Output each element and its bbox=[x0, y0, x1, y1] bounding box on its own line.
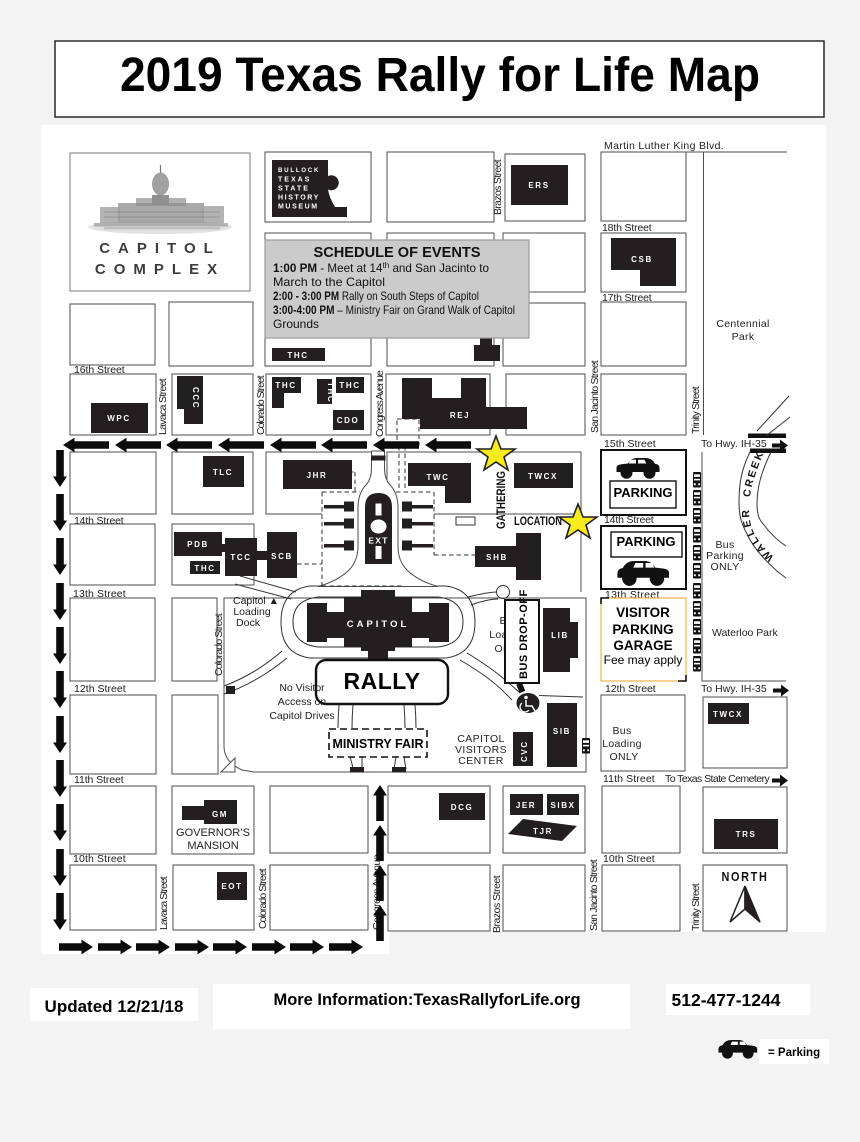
svg-text:No Visitor: No Visitor bbox=[279, 682, 325, 694]
svg-text:MUSEUM: MUSEUM bbox=[278, 204, 319, 211]
svg-text:To Hwy. IH-35: To Hwy. IH-35 bbox=[701, 438, 767, 450]
svg-text:CCC: CCC bbox=[191, 387, 200, 409]
svg-text:16th Street: 16th Street bbox=[74, 364, 125, 376]
svg-text:PARKING: PARKING bbox=[612, 622, 673, 637]
svg-text:MANSION: MANSION bbox=[187, 840, 238, 852]
svg-text:VISITOR: VISITOR bbox=[616, 605, 670, 620]
svg-text:TRS: TRS bbox=[736, 830, 757, 839]
svg-text:512-477-1244: 512-477-1244 bbox=[672, 990, 781, 1010]
svg-text:THC: THC bbox=[326, 382, 335, 403]
svg-text:GOVERNOR’S: GOVERNOR’S bbox=[176, 827, 250, 839]
svg-text:Colorado Street: Colorado Street bbox=[213, 613, 225, 676]
svg-text:TEXAS: TEXAS bbox=[278, 177, 311, 184]
svg-text:TWCX: TWCX bbox=[713, 710, 743, 719]
svg-text:Access on: Access on bbox=[278, 696, 327, 708]
svg-text:WPC: WPC bbox=[107, 414, 130, 423]
svg-text:Colorado Street: Colorado Street bbox=[257, 868, 269, 929]
svg-text:SCHEDULE OF EVENTS: SCHEDULE OF EVENTS bbox=[314, 245, 481, 261]
svg-text:THC: THC bbox=[339, 381, 360, 390]
svg-text:10th Street: 10th Street bbox=[73, 853, 126, 865]
svg-text:HISTORY: HISTORY bbox=[278, 195, 320, 202]
svg-text:CVC: CVC bbox=[520, 740, 529, 762]
svg-text:San Jacinto Street: San Jacinto Street bbox=[588, 859, 600, 931]
svg-text:THC: THC bbox=[194, 564, 215, 573]
svg-text:12th Street: 12th Street bbox=[74, 683, 126, 695]
svg-text:SHB: SHB bbox=[486, 553, 508, 562]
svg-text:BUS DROP-OFF: BUS DROP-OFF bbox=[518, 589, 530, 679]
svg-text:2:00 - 3:00 PM Rally on South: 2:00 - 3:00 PM Rally on South Steps of C… bbox=[273, 290, 479, 303]
svg-text:Lavaca Street: Lavaca Street bbox=[157, 378, 169, 435]
svg-text:ONLY: ONLY bbox=[710, 561, 739, 573]
svg-text:CDO: CDO bbox=[337, 416, 360, 425]
svg-text:12th Street: 12th Street bbox=[605, 683, 656, 695]
svg-text:Centennial: Centennial bbox=[716, 318, 769, 330]
svg-text:March to the Capitol: March to the Capitol bbox=[273, 276, 385, 289]
svg-text:CAPITOL: CAPITOL bbox=[99, 240, 221, 257]
svg-text:GATHERING: GATHERING bbox=[494, 471, 508, 529]
svg-text:Brazos Street: Brazos Street bbox=[492, 159, 504, 215]
svg-text:MINISTRY FAIR: MINISTRY FAIR bbox=[333, 737, 424, 751]
svg-text:= Parking: = Parking bbox=[768, 1047, 820, 1059]
svg-text:San Jacinto Street: San Jacinto Street bbox=[589, 360, 601, 433]
svg-text:SCB: SCB bbox=[271, 552, 293, 561]
svg-text:3:00-4:00 PM – Ministry Fair o: 3:00-4:00 PM – Ministry Fair on Grand Wa… bbox=[273, 304, 515, 317]
svg-text:DCG: DCG bbox=[451, 803, 474, 812]
svg-text:Trinity Street: Trinity Street bbox=[690, 386, 702, 434]
svg-text:CAPITOL: CAPITOL bbox=[347, 619, 410, 630]
svg-text:PDB: PDB bbox=[187, 540, 209, 549]
svg-text:SIBX: SIBX bbox=[550, 801, 575, 810]
svg-text:THC: THC bbox=[275, 381, 296, 390]
svg-text:Dock: Dock bbox=[236, 617, 261, 629]
svg-text:More Information:TexasRallyfor: More Information:TexasRallyforLife.org bbox=[274, 991, 581, 1009]
svg-text:10th Street: 10th Street bbox=[603, 853, 655, 865]
svg-text:14th Street: 14th Street bbox=[74, 515, 124, 527]
svg-text:Capitol Drives: Capitol Drives bbox=[269, 710, 334, 722]
svg-text:JHR: JHR bbox=[307, 471, 328, 480]
svg-text:18th Street: 18th Street bbox=[602, 222, 652, 234]
svg-text:ONLY: ONLY bbox=[609, 751, 638, 763]
svg-text:CENTER: CENTER bbox=[458, 755, 504, 767]
svg-text:BULLOCK: BULLOCK bbox=[278, 167, 320, 174]
svg-text:SIB: SIB bbox=[553, 727, 571, 736]
svg-text:13th Street: 13th Street bbox=[73, 588, 126, 600]
svg-text:Bus: Bus bbox=[613, 725, 632, 737]
svg-text:RALLY: RALLY bbox=[343, 668, 420, 694]
svg-text:THC: THC bbox=[287, 351, 308, 360]
svg-text:LIB: LIB bbox=[551, 631, 569, 640]
svg-text:Trinity Street: Trinity Street bbox=[690, 883, 702, 931]
svg-text:EXT: EXT bbox=[368, 536, 388, 546]
svg-text:TWC: TWC bbox=[426, 473, 449, 482]
svg-text:Loading: Loading bbox=[602, 738, 641, 750]
svg-text:Martin Luther King Blvd.: Martin Luther King Blvd. bbox=[604, 140, 724, 152]
svg-text:11th Street: 11th Street bbox=[603, 773, 655, 785]
svg-text:GARAGE: GARAGE bbox=[613, 638, 672, 653]
svg-text:1:00 PM - Meet at 14th and San: 1:00 PM - Meet at 14th and San Jacinto t… bbox=[273, 261, 489, 275]
svg-text:To Hwy. IH-35: To Hwy. IH-35 bbox=[701, 683, 767, 695]
svg-text:15th Street: 15th Street bbox=[604, 438, 656, 450]
svg-text:11th Street: 11th Street bbox=[74, 774, 124, 786]
svg-text:Fee may apply: Fee may apply bbox=[604, 653, 683, 667]
svg-text:ERS: ERS bbox=[528, 181, 549, 190]
svg-text:COMPLEX: COMPLEX bbox=[95, 261, 225, 278]
svg-text:PARKING: PARKING bbox=[617, 534, 676, 549]
svg-text:TCC: TCC bbox=[230, 553, 251, 562]
svg-text:REJ: REJ bbox=[450, 411, 470, 420]
svg-text:TJR: TJR bbox=[533, 827, 553, 836]
svg-text:LOCATION: LOCATION bbox=[514, 514, 562, 528]
svg-text:STATE: STATE bbox=[278, 186, 310, 193]
svg-text:PARKING: PARKING bbox=[614, 485, 673, 500]
svg-text:Lavaca Street: Lavaca Street bbox=[158, 876, 170, 930]
svg-text:Congress Avenue: Congress Avenue bbox=[374, 370, 386, 437]
svg-text:EOT: EOT bbox=[221, 882, 242, 891]
svg-text:NORTH: NORTH bbox=[722, 869, 769, 884]
svg-text:Park: Park bbox=[732, 331, 755, 343]
svg-text:Grounds: Grounds bbox=[273, 318, 319, 331]
svg-text:TLC: TLC bbox=[213, 468, 233, 477]
svg-text:Updated 12/21/18: Updated 12/21/18 bbox=[45, 997, 184, 1016]
svg-text:JER: JER bbox=[516, 801, 536, 810]
svg-text:CSB: CSB bbox=[631, 255, 653, 264]
svg-text:Colorado Street: Colorado Street bbox=[255, 375, 267, 435]
svg-text:TWCX: TWCX bbox=[528, 472, 558, 481]
svg-text:Brazos Street: Brazos Street bbox=[491, 875, 503, 933]
svg-text:GM: GM bbox=[212, 810, 228, 819]
svg-text:2019 Texas Rally for Life Map: 2019 Texas Rally for Life Map bbox=[120, 49, 760, 102]
svg-text:17th Street: 17th Street bbox=[602, 292, 652, 304]
svg-text:Waterloo Park: Waterloo Park bbox=[712, 627, 778, 639]
svg-text:To Texas State Cemetery: To Texas State Cemetery bbox=[665, 773, 770, 785]
